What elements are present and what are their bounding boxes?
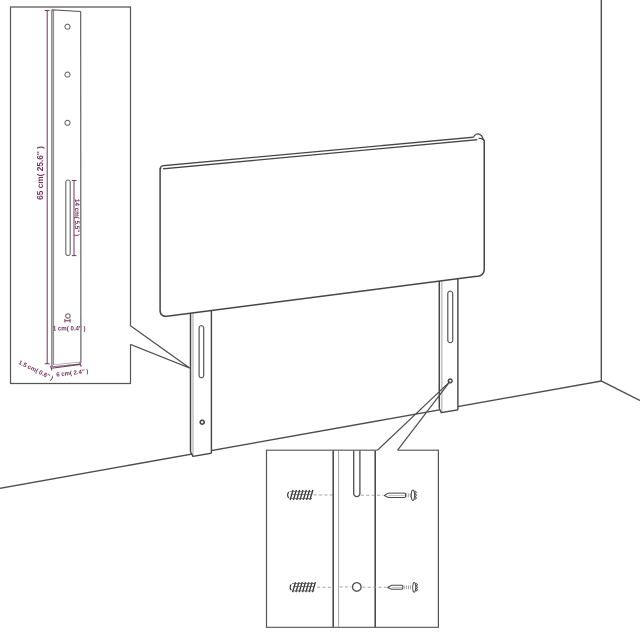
svg-text:1 cm( 0.4'' ): 1 cm( 0.4'' ): [53, 325, 86, 332]
svg-text:14 cm( 5.5'' ): 14 cm( 5.5'' ): [73, 199, 80, 236]
svg-text:65 cm( 25.6'' ): 65 cm( 25.6'' ): [35, 146, 45, 200]
